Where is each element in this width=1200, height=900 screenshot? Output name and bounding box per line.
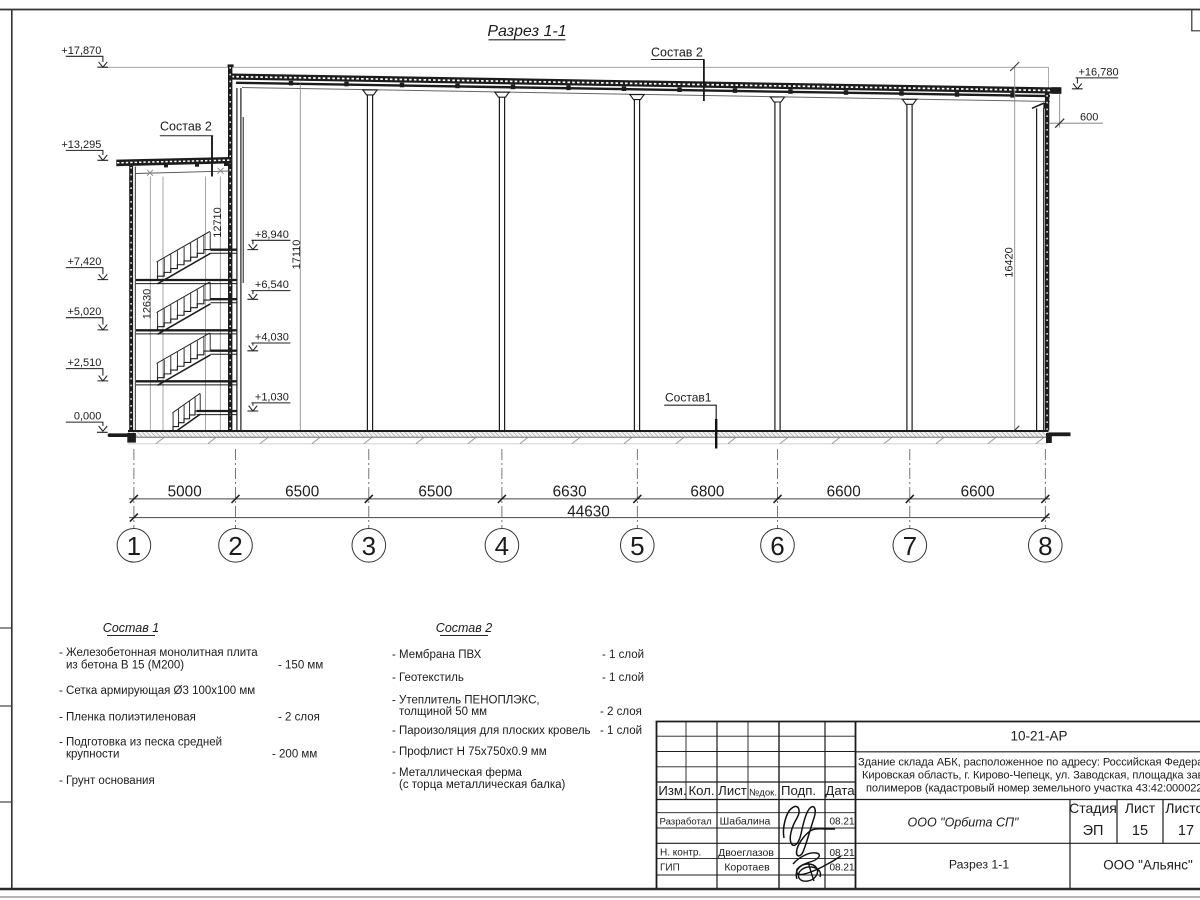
- svg-text:- 1 слой: - 1 слой: [600, 725, 642, 737]
- svg-text:- Профлист Н 75х750х0.9 мм: - Профлист Н 75х750х0.9 мм: [392, 746, 547, 758]
- svg-text:10-21-АР: 10-21-АР: [1010, 729, 1067, 744]
- svg-text:7: 7: [903, 531, 917, 561]
- svg-text:- Мембрана ПВХ: - Мембрана ПВХ: [392, 649, 482, 661]
- svg-text:- Железобетонная монолитная п: - Железобетонная монолитная плита: [59, 647, 258, 659]
- svg-text:2: 2: [228, 531, 242, 561]
- svg-text:6500: 6500: [418, 483, 452, 500]
- svg-text:+2,510: +2,510: [67, 357, 101, 369]
- svg-text:+8,940: +8,940: [255, 229, 289, 241]
- svg-text:Двоеглазов: Двоеглазов: [718, 847, 774, 859]
- svg-text:- 1 слой: - 1 слой: [602, 649, 644, 661]
- svg-text:08.21: 08.21: [829, 817, 854, 828]
- svg-text:Подп.: Подп.: [781, 783, 816, 798]
- svg-text:15: 15: [1132, 823, 1148, 839]
- svg-text:3: 3: [362, 531, 376, 561]
- svg-text:Разрез 1-1: Разрез 1-1: [487, 23, 566, 40]
- svg-text:Лист: Лист: [718, 783, 747, 798]
- svg-text:Состав 2: Состав 2: [651, 46, 703, 60]
- svg-text:Состав 1: Состав 1: [103, 621, 159, 635]
- svg-text:- 2 слоя: - 2 слоя: [600, 706, 642, 718]
- svg-text:600: 600: [1080, 112, 1098, 124]
- svg-text:толщиной 50 мм: толщиной 50 мм: [399, 706, 487, 718]
- svg-text:08.21: 08.21: [829, 848, 854, 859]
- svg-text:- Утеплитель ПЕНОПЛЭКС,: - Утеплитель ПЕНОПЛЭКС,: [392, 695, 540, 707]
- svg-text:- Пароизоляция для плоских кро: - Пароизоляция для плоских кровель: [392, 725, 591, 737]
- svg-text:- Подготовка из песка средней: - Подготовка из песка средней: [59, 737, 222, 749]
- svg-text:5000: 5000: [168, 483, 202, 500]
- svg-text:Состав1: Состав1: [665, 391, 712, 405]
- svg-text:Дата: Дата: [825, 783, 855, 798]
- svg-text:+4,030: +4,030: [255, 332, 289, 344]
- svg-text:- 200 мм: - 200 мм: [272, 749, 317, 761]
- svg-text:+16,780: +16,780: [1079, 66, 1119, 78]
- svg-text:Кировская область, г. Кирово-Ч: Кировская область, г. Кирово-Чепецк, ул.…: [862, 770, 1200, 782]
- svg-text:Разработал: Разработал: [660, 816, 712, 827]
- svg-text:ЭП: ЭП: [1083, 823, 1104, 839]
- svg-text:Стадия: Стадия: [1069, 800, 1117, 816]
- svg-text:Лист: Лист: [1125, 800, 1156, 816]
- svg-text:- Металлическая ферма: - Металлическая ферма: [392, 767, 523, 779]
- svg-text:5: 5: [630, 531, 644, 561]
- svg-text:16420: 16420: [1004, 247, 1016, 278]
- svg-text:08.21: 08.21: [829, 863, 854, 874]
- svg-text:Листов: Листов: [1165, 800, 1200, 816]
- svg-text:6800: 6800: [690, 483, 724, 500]
- svg-text:- Геотекстиль: - Геотекстиль: [392, 672, 464, 684]
- svg-text:№док.: №док.: [749, 788, 777, 799]
- svg-text:ООО "Альянс": ООО "Альянс": [1103, 858, 1193, 873]
- svg-text:полимеров (кадастровый номер з: полимеров (кадастровый номер земельного …: [866, 783, 1200, 795]
- svg-text:Шабалина: Шабалина: [720, 816, 771, 828]
- svg-text:+7,420: +7,420: [67, 256, 101, 268]
- svg-text:0,000: 0,000: [74, 411, 102, 423]
- svg-text:- 1 слой: - 1 слой: [602, 672, 644, 684]
- svg-text:- 2 слоя: - 2 слоя: [278, 712, 320, 724]
- svg-text:12710: 12710: [212, 207, 224, 238]
- svg-text:+5,020: +5,020: [67, 306, 101, 318]
- svg-text:- 150 мм: - 150 мм: [278, 660, 323, 672]
- svg-text:ООО "Орбита СП": ООО "Орбита СП": [908, 816, 1020, 830]
- svg-text:44630: 44630: [567, 504, 610, 521]
- svg-text:Изм.: Изм.: [658, 783, 686, 798]
- svg-text:8: 8: [1038, 531, 1052, 561]
- svg-text:Здание склада АБК, расположенн: Здание склада АБК, расположенное по адре…: [858, 757, 1200, 769]
- svg-text:Коротаев: Коротаев: [724, 862, 770, 874]
- svg-text:+17,870: +17,870: [61, 45, 101, 57]
- svg-text:Кол.: Кол.: [688, 783, 714, 798]
- svg-text:Разрез 1-1: Разрез 1-1: [949, 857, 1010, 871]
- svg-text:+13,295: +13,295: [61, 139, 101, 151]
- svg-text:4: 4: [495, 531, 509, 561]
- svg-text:Н. контр.: Н. контр.: [660, 848, 701, 859]
- svg-text:+6,540: +6,540: [255, 279, 289, 291]
- svg-text:6: 6: [770, 531, 784, 561]
- svg-text:- Пленка полиэтиленовая: - Пленка полиэтиленовая: [59, 712, 196, 724]
- svg-text:- Сетка армирующая Ø3 100х100: - Сетка армирующая Ø3 100х100 мм: [59, 685, 255, 697]
- svg-text:- Грунт основания: - Грунт основания: [59, 775, 155, 787]
- svg-text:1: 1: [127, 531, 141, 561]
- svg-text:из бетона В 15 (М200): из бетона В 15 (М200): [66, 660, 184, 672]
- svg-text:Состав 2: Состав 2: [160, 120, 212, 134]
- svg-text:17110: 17110: [291, 240, 303, 270]
- svg-text:6600: 6600: [961, 483, 995, 500]
- svg-text:17: 17: [1178, 823, 1194, 839]
- svg-text:крупности: крупности: [66, 749, 119, 761]
- svg-text:6500: 6500: [285, 483, 319, 500]
- svg-text:12630: 12630: [142, 289, 154, 320]
- svg-text:Состав 2: Состав 2: [436, 621, 492, 635]
- svg-text:(с торца металлическая балка): (с торца металлическая балка): [399, 779, 566, 791]
- svg-text:6600: 6600: [827, 483, 861, 500]
- svg-text:ГИП: ГИП: [660, 863, 680, 874]
- svg-text:+1,030: +1,030: [255, 391, 289, 403]
- svg-text:6630: 6630: [553, 483, 587, 500]
